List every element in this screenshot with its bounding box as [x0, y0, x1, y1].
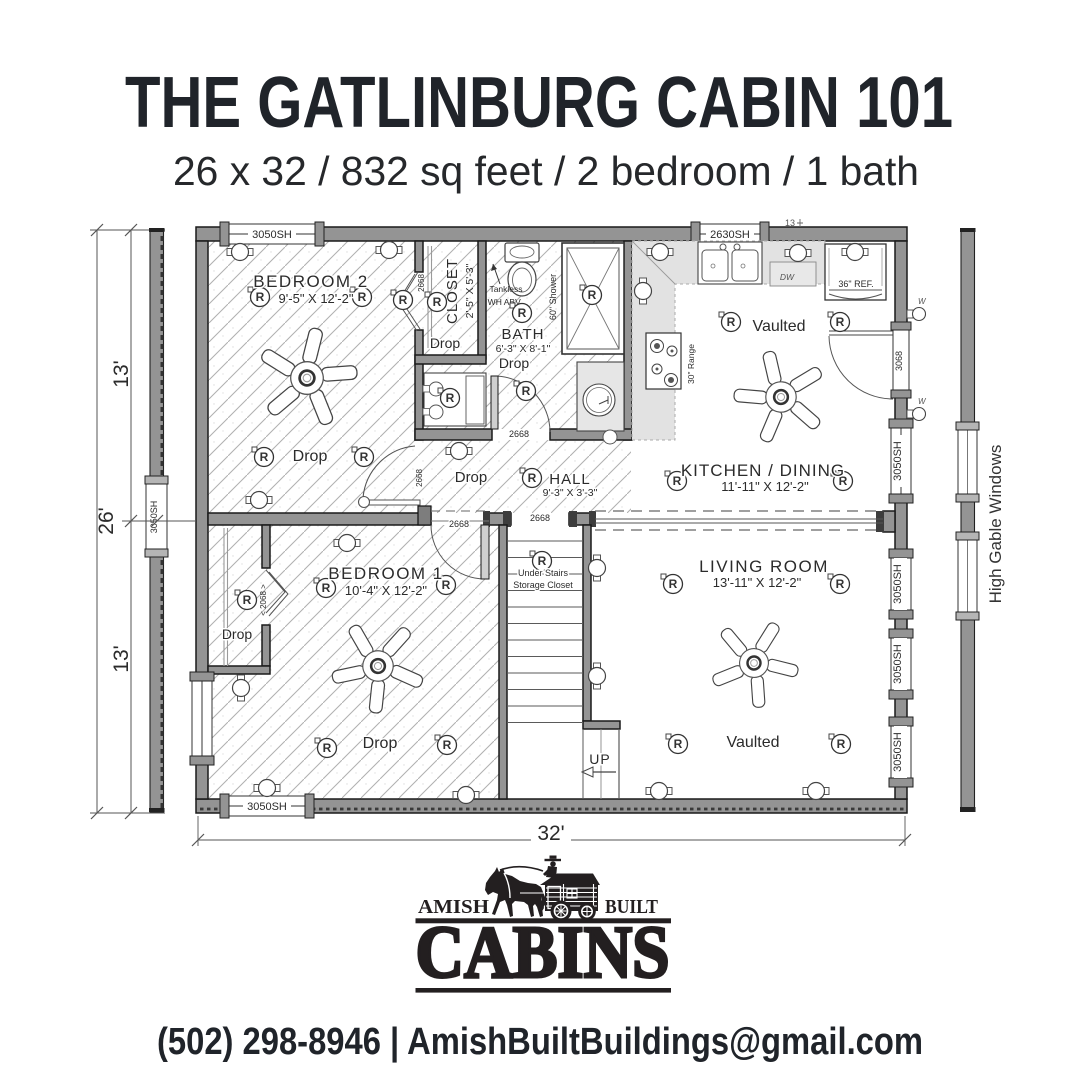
svg-text:60" Shower: 60" Shower: [548, 274, 558, 320]
svg-text:13'-11" X 12'-2": 13'-11" X 12'-2": [713, 575, 802, 590]
svg-text:UP: UP: [589, 751, 610, 767]
svg-text:32': 32': [537, 822, 564, 845]
svg-text:DW: DW: [780, 272, 795, 282]
svg-text:26': 26': [95, 507, 118, 534]
svg-text:Drop: Drop: [293, 448, 328, 465]
svg-text:Vaulted: Vaulted: [726, 734, 779, 751]
svg-text:3050SH: 3050SH: [247, 801, 287, 813]
svg-text:BEDROOM 1: BEDROOM 1: [328, 564, 444, 583]
svg-text:2668: 2668: [415, 469, 424, 487]
svg-text:LIVING ROOM: LIVING ROOM: [699, 557, 829, 576]
svg-text:BATH: BATH: [502, 326, 545, 343]
svg-text:13: 13: [785, 218, 795, 228]
svg-text:10'-4" X 12'-2": 10'-4" X 12'-2": [345, 583, 428, 598]
svg-text:2'-5" X 5'-3": 2'-5" X 5'-3": [464, 263, 476, 318]
svg-text:3050SH: 3050SH: [892, 732, 904, 772]
svg-text:2668: 2668: [530, 513, 550, 523]
svg-text:Under Stairs: Under Stairs: [518, 568, 569, 578]
svg-text:9'-3" X 3'-3": 9'-3" X 3'-3": [543, 487, 598, 499]
svg-text:Vaulted: Vaulted: [752, 318, 805, 335]
svg-text:THE GATLINBURG CABIN 101: THE GATLINBURG CABIN 101: [125, 63, 953, 143]
svg-text:26 x 32 / 832 sq feet / 2 bedr: 26 x 32 / 832 sq feet / 2 bedroom / 1 ba…: [173, 148, 919, 194]
svg-text:CABINS: CABINS: [416, 912, 670, 994]
svg-text:30" Range: 30" Range: [686, 344, 696, 384]
svg-text:9'-5" X 12'-2": 9'-5" X 12'-2": [279, 291, 354, 306]
svg-text:HALL: HALL: [549, 471, 591, 488]
svg-text:3050SH: 3050SH: [149, 501, 159, 534]
svg-text:Drop: Drop: [430, 335, 461, 351]
svg-text:Storage Closet: Storage Closet: [513, 580, 573, 590]
svg-text:36" REF.: 36" REF.: [838, 279, 873, 289]
svg-text:3050SH: 3050SH: [252, 229, 292, 241]
svg-text:Drop: Drop: [363, 735, 398, 752]
svg-text:2630SH: 2630SH: [710, 229, 750, 241]
svg-text:3068: 3068: [894, 351, 904, 371]
svg-text:(502) 298-8946 | AmishBuiltBui: (502) 298-8946 | AmishBuiltBuildings@gma…: [157, 1021, 923, 1063]
svg-text:3050SH: 3050SH: [892, 564, 904, 604]
svg-text:Drop: Drop: [499, 355, 530, 371]
svg-text:3050SH: 3050SH: [892, 644, 904, 684]
svg-text:13': 13': [110, 645, 133, 672]
svg-text:CLOSET: CLOSET: [444, 258, 461, 324]
svg-text:2668: 2668: [449, 519, 469, 529]
svg-text:13': 13': [110, 360, 133, 387]
svg-text:BEDROOM 2: BEDROOM 2: [253, 272, 369, 291]
svg-text:3050SH: 3050SH: [892, 441, 904, 481]
svg-text:< 2068 >: < 2068 >: [259, 584, 268, 616]
svg-text:Drop: Drop: [222, 626, 253, 642]
svg-text:6'-3" X 8'-1": 6'-3" X 8'-1": [496, 343, 551, 355]
svg-text:High Gable Windows: High Gable Windows: [986, 445, 1005, 604]
svg-text:Tankless: Tankless: [489, 284, 522, 294]
svg-text:KITCHEN / DINING: KITCHEN / DINING: [681, 461, 845, 480]
svg-text:2668: 2668: [509, 429, 529, 439]
svg-text:2668: 2668: [417, 274, 426, 292]
svg-text:11'-11" X 12'-2": 11'-11" X 12'-2": [721, 479, 809, 494]
svg-text:Drop: Drop: [455, 469, 488, 486]
